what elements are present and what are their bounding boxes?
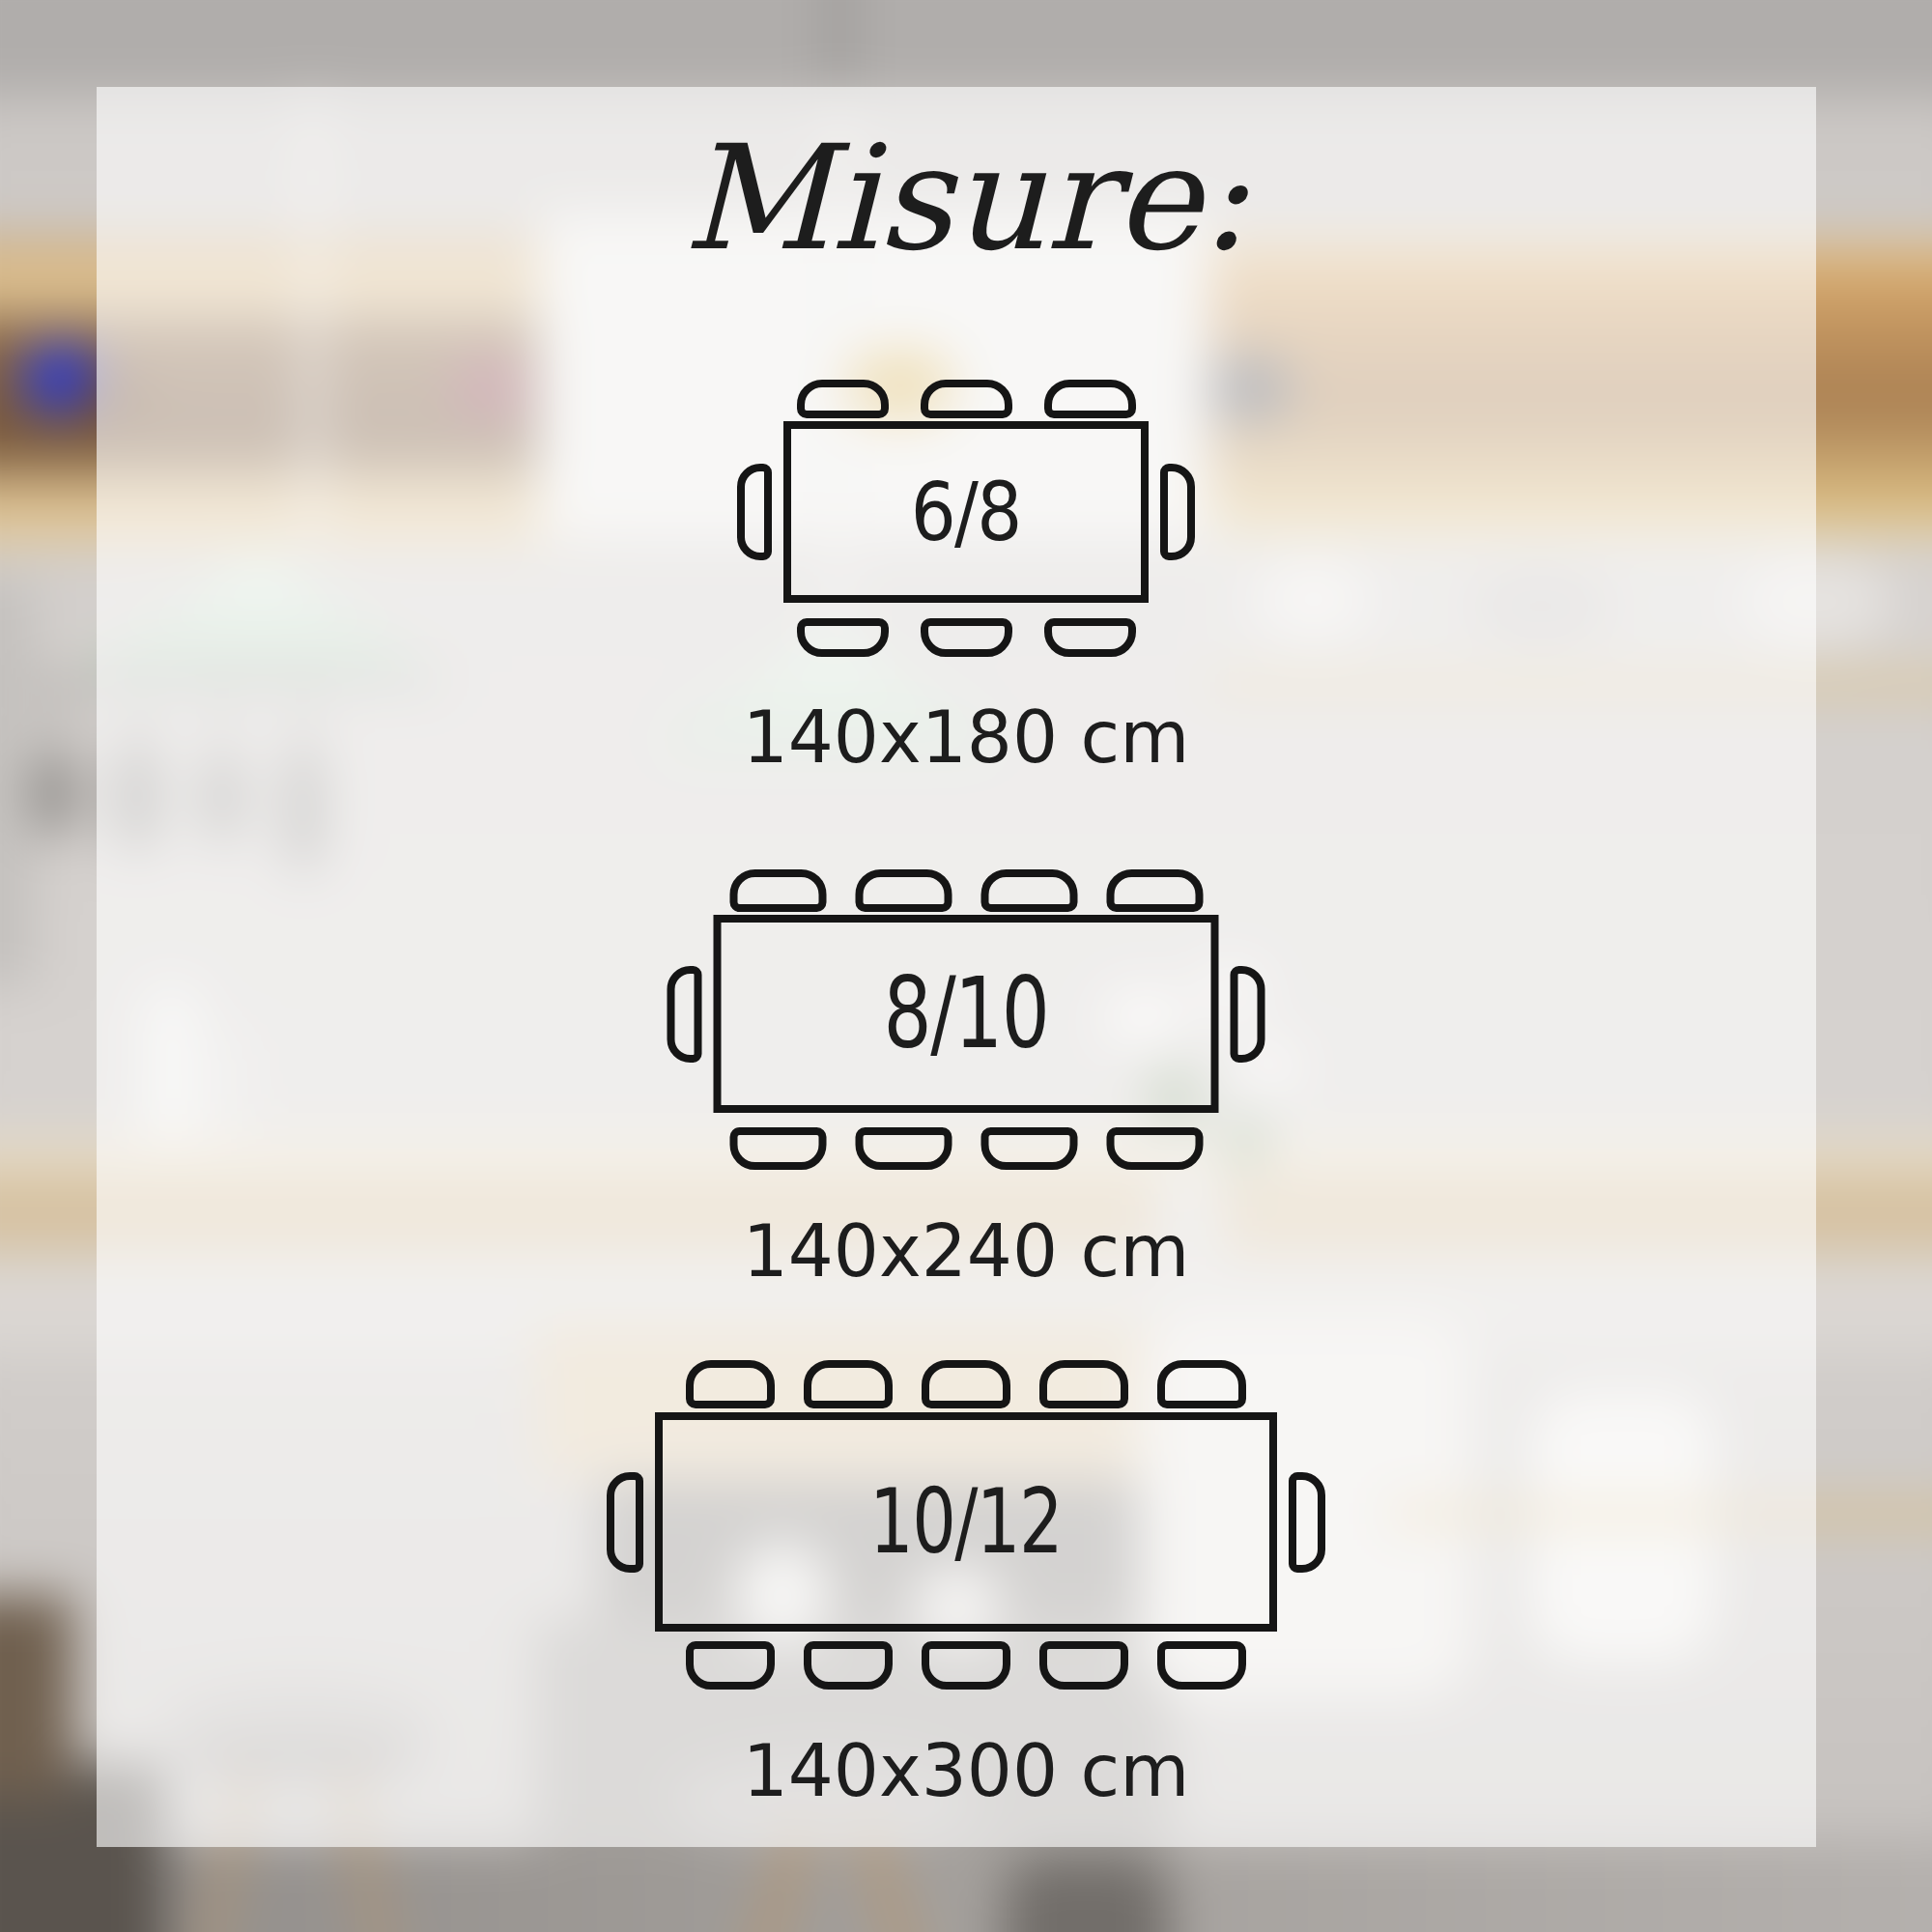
- chair-bottom-icon: [804, 1641, 893, 1690]
- chair-top-icon: [921, 380, 1012, 418]
- chair-right-icon: [1160, 464, 1195, 560]
- chair-bottom-icon: [922, 1641, 1010, 1690]
- table-diagram-10-12: 10/12: [655, 1360, 1277, 1690]
- chair-bottom-icon: [1039, 1641, 1128, 1690]
- bg-pillar: [0, 580, 34, 985]
- chair-top-icon: [980, 869, 1077, 912]
- chair-slot-right: [1160, 464, 1195, 560]
- chair-slot-left: [737, 464, 772, 560]
- chair-row-top: [686, 1360, 1246, 1408]
- chair-top-icon: [797, 380, 889, 418]
- page-title: Misure:: [0, 126, 1932, 270]
- table-top-icon: 8/10: [714, 915, 1219, 1113]
- chair-left-icon: [737, 464, 772, 560]
- seats-label: 10/12: [869, 1478, 1062, 1567]
- chair-bottom-icon: [686, 1641, 775, 1690]
- table-top-icon: 10/12: [655, 1412, 1277, 1632]
- chair-bottom-icon: [1044, 618, 1136, 657]
- chair-top-icon: [1039, 1360, 1128, 1408]
- chair-right-icon: [1231, 966, 1265, 1063]
- bg-floor-strip: [0, 1841, 1932, 1932]
- chair-top-icon: [686, 1360, 775, 1408]
- chair-top-icon: [729, 869, 826, 912]
- chair-row-bottom: [729, 1127, 1203, 1170]
- chair-right-icon: [1289, 1472, 1325, 1573]
- table-diagram-6-8: 6/8: [783, 380, 1149, 657]
- chair-bottom-icon: [855, 1127, 952, 1170]
- chair-row-bottom: [686, 1641, 1246, 1690]
- chair-bottom-icon: [980, 1127, 1077, 1170]
- dimension-label: 140x180 cm: [0, 701, 1932, 773]
- chair-bottom-icon: [729, 1127, 826, 1170]
- seats-label: 8/10: [884, 965, 1049, 1063]
- chair-bottom-icon: [1106, 1127, 1203, 1170]
- seats-label: 6/8: [911, 471, 1021, 553]
- table-wrap: 8/10: [714, 915, 1219, 1113]
- chair-slot-left: [668, 966, 702, 1063]
- chair-top-icon: [855, 869, 952, 912]
- bg-stool-shadow: [1005, 1857, 1169, 1932]
- chair-top-icon: [804, 1360, 893, 1408]
- measurements-infographic: Misure: 6/8 140x180 cm 8/10 140x240 cm: [0, 0, 1932, 1932]
- chair-slot-right: [1231, 966, 1265, 1063]
- bg-ceiling: [0, 0, 1932, 97]
- chair-slot-right: [1289, 1472, 1325, 1573]
- chair-top-icon: [1106, 869, 1203, 912]
- chair-top-icon: [1044, 380, 1136, 418]
- chair-left-icon: [668, 966, 702, 1063]
- chair-bottom-icon: [1157, 1641, 1246, 1690]
- chair-top-icon: [1157, 1360, 1246, 1408]
- chair-row-bottom: [797, 618, 1136, 657]
- chair-row-top: [797, 380, 1136, 418]
- dimension-label: 140x300 cm: [0, 1735, 1932, 1806]
- table-wrap: 10/12: [655, 1412, 1277, 1632]
- chair-left-icon: [607, 1472, 643, 1573]
- chair-bottom-icon: [921, 618, 1012, 657]
- chair-bottom-icon: [797, 618, 889, 657]
- table-top-icon: 6/8: [783, 421, 1149, 603]
- chair-top-icon: [922, 1360, 1010, 1408]
- bg-lamp-cord: [832, 0, 846, 95]
- table-diagram-8-10: 8/10: [714, 869, 1219, 1170]
- dimension-label: 140x240 cm: [0, 1215, 1932, 1287]
- chair-row-top: [729, 869, 1203, 912]
- chair-slot-left: [607, 1472, 643, 1573]
- table-wrap: 6/8: [783, 421, 1149, 603]
